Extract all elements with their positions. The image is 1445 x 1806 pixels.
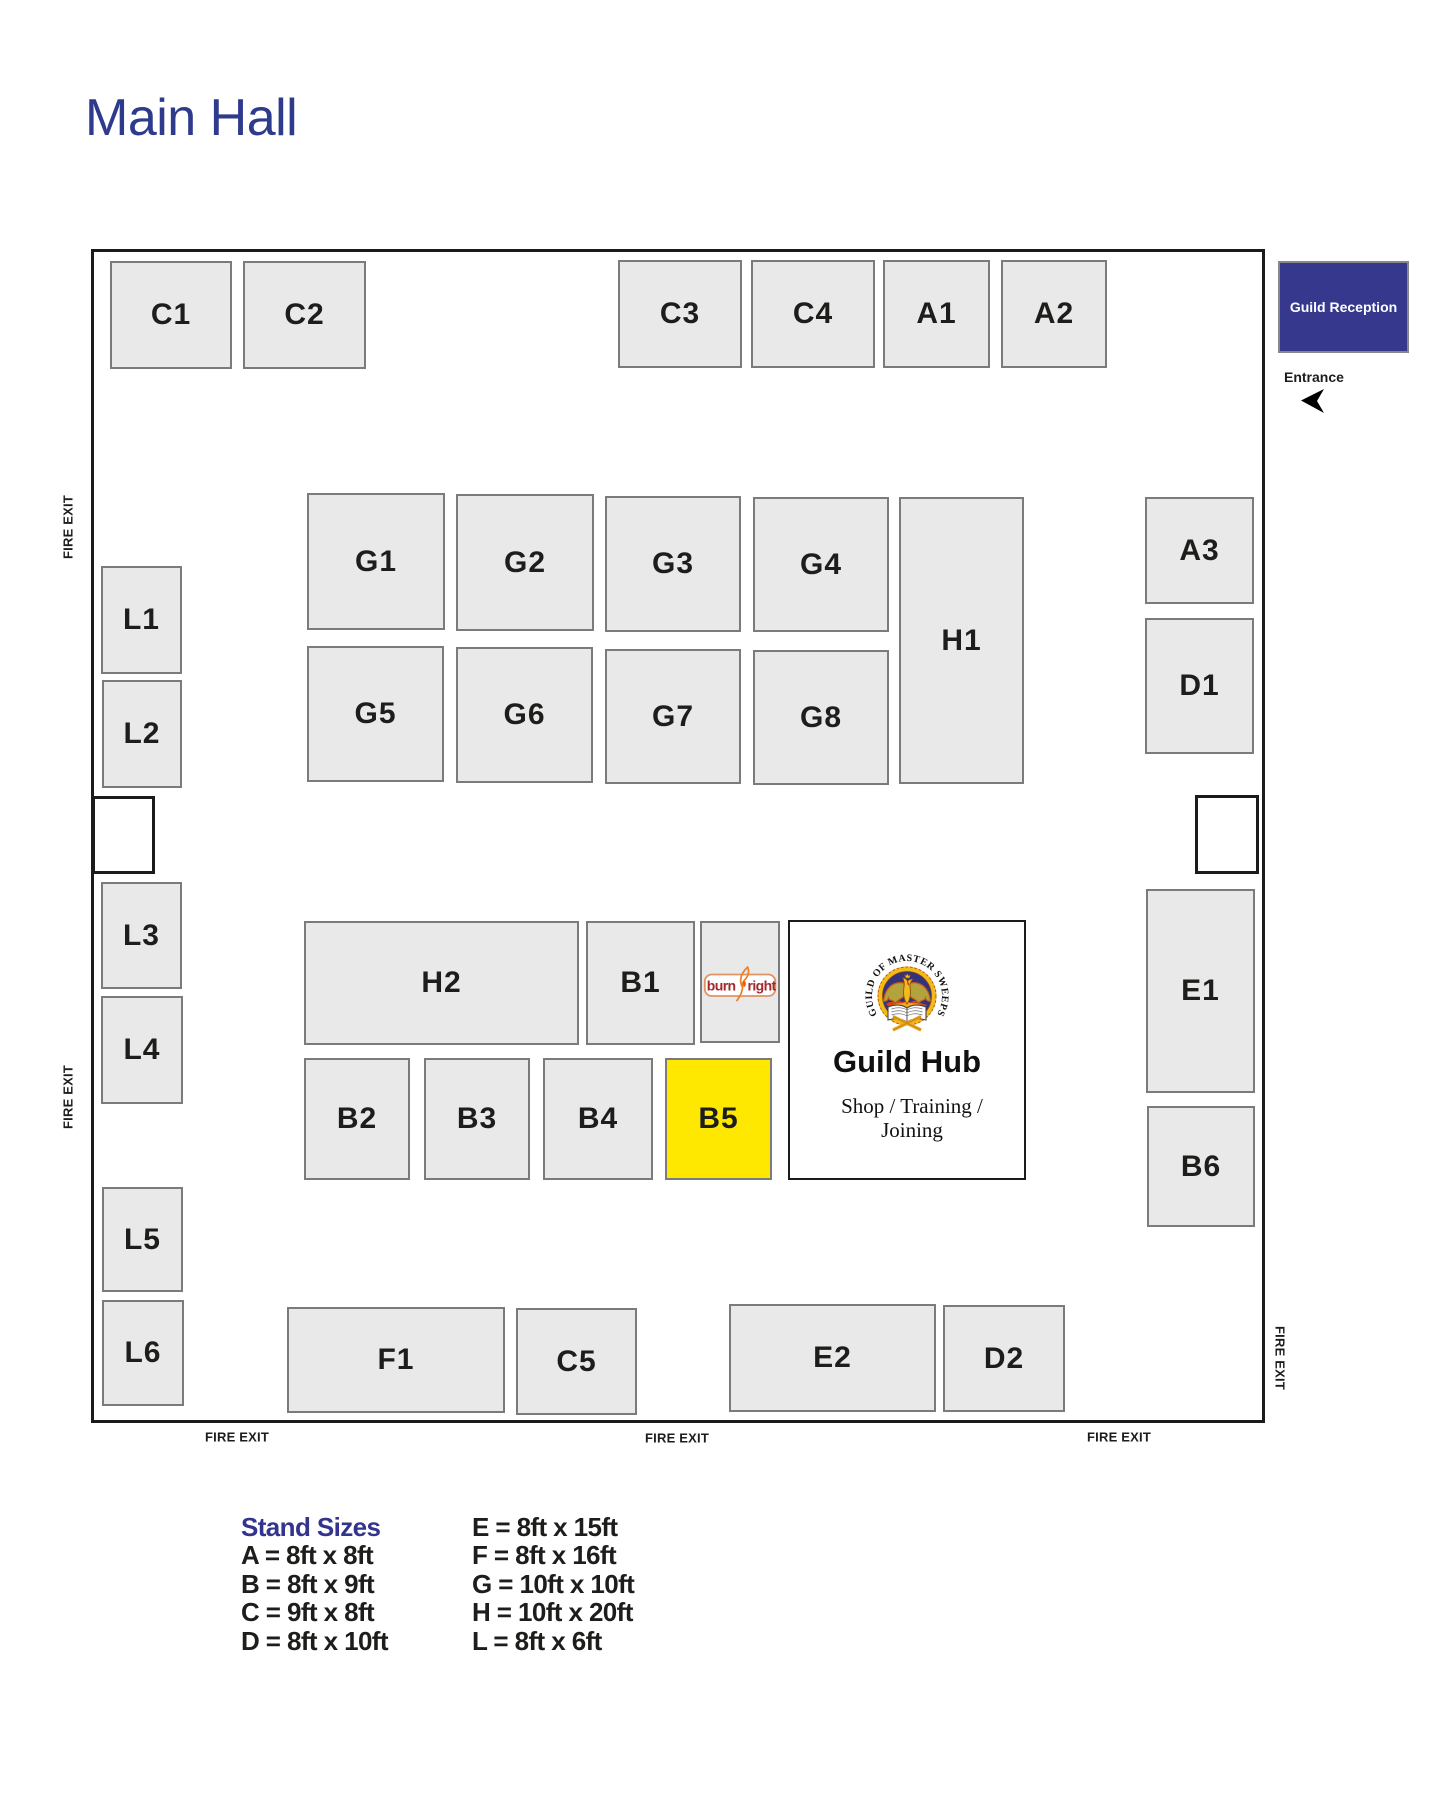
svg-text:right: right <box>748 978 777 994</box>
svg-text:burn: burn <box>707 978 736 994</box>
